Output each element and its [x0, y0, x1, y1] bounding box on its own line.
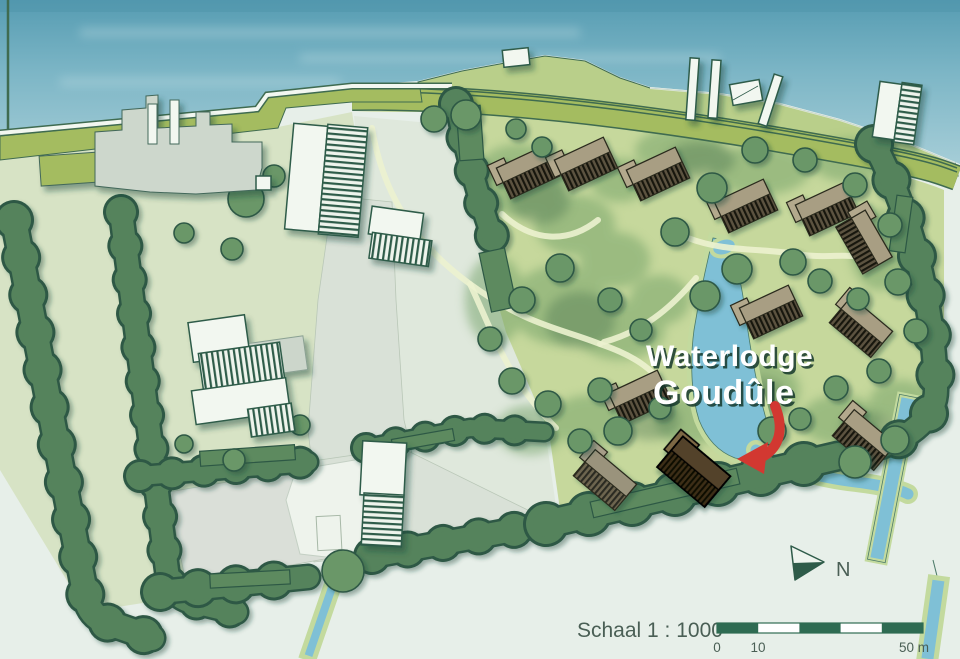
title-line1: Waterlodge [646, 340, 813, 373]
parking-stalls [316, 515, 342, 550]
barn-building [284, 121, 367, 237]
boathouse-building [872, 79, 922, 144]
scale-tick-0: 0 [713, 640, 721, 655]
scale-tick-50: 50 m [899, 640, 929, 655]
scale-bar [717, 623, 923, 633]
scale-tick-10: 10 [750, 640, 765, 655]
site-plan-map: Waterlodge Waterlodge Goudûle Goudûle N … [0, 0, 960, 659]
waterlodge-title: Waterlodge Waterlodge Goudûle Goudûle [646, 340, 816, 415]
scale-label: Schaal 1 : 1000 [577, 619, 723, 642]
north-label: N [836, 559, 850, 581]
shed-building [357, 441, 406, 547]
